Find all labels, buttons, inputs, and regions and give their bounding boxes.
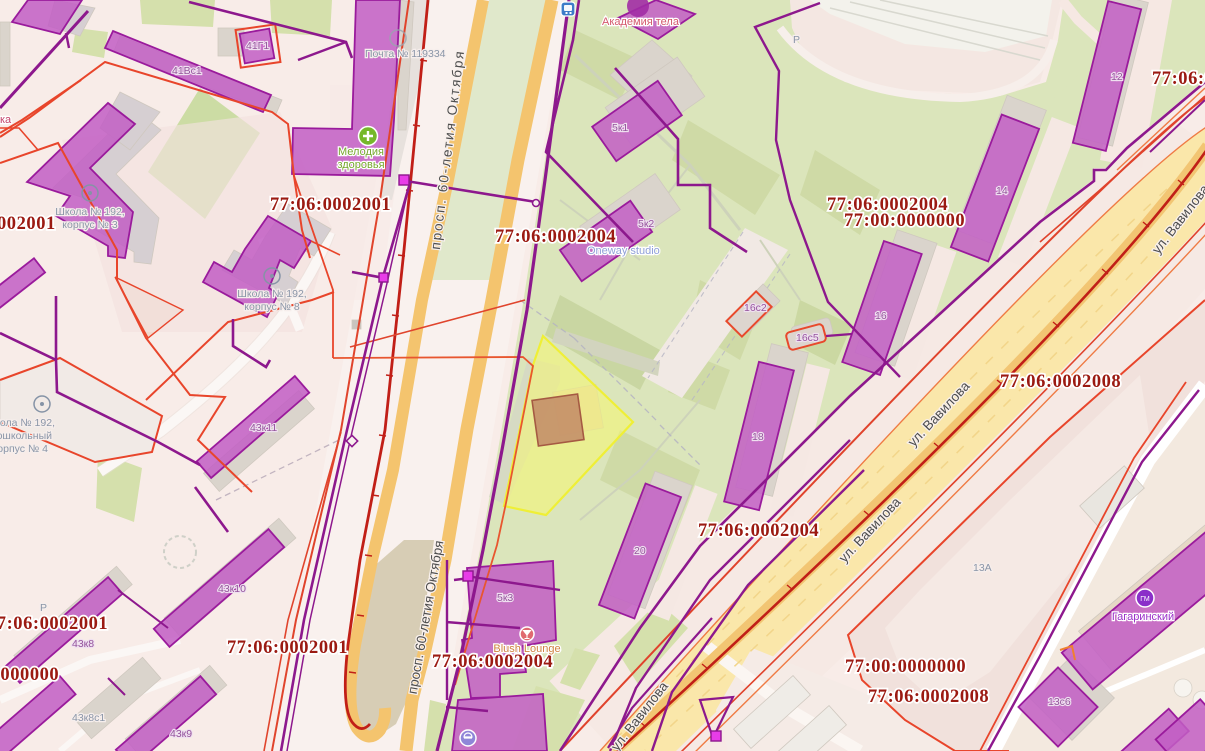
svg-text:Мелодия: Мелодия [338, 146, 384, 158]
svg-text:13с6: 13с6 [1048, 696, 1071, 708]
svg-text:77:06:0002001: 77:06:0002001 [270, 195, 391, 215]
svg-text:Академия тела: Академия тела [602, 16, 680, 28]
svg-text:Гагаринский: Гагаринский [1112, 611, 1174, 623]
svg-text:43к11: 43к11 [250, 422, 277, 434]
svg-text:корпус № 4: корпус № 4 [0, 443, 48, 455]
svg-text:16с2: 16с2 [744, 302, 767, 314]
svg-text:ГМ: ГМ [1140, 596, 1150, 603]
svg-text:18: 18 [752, 431, 764, 443]
svg-text:77:06:0002001: 77:06:0002001 [227, 638, 348, 658]
svg-text:77:00:0000000: 77:00:0000000 [844, 211, 965, 231]
svg-text:43к8с1: 43к8с1 [72, 712, 105, 724]
svg-text:16: 16 [875, 310, 887, 322]
svg-text:Blush Lounge: Blush Lounge [493, 643, 560, 655]
svg-text:43к10: 43к10 [218, 583, 246, 595]
svg-text:77:06:0002001: 77:06:0002001 [0, 614, 108, 634]
svg-text:корпус № 8: корпус № 8 [244, 301, 300, 313]
svg-text:Р: Р [40, 602, 47, 614]
svg-text:5к2: 5к2 [638, 218, 654, 230]
svg-text:43к9: 43к9 [170, 728, 192, 740]
svg-text:Школа № 192,: Школа № 192, [0, 417, 55, 429]
svg-text:Школа № 192,: Школа № 192, [55, 206, 124, 218]
svg-text:13А: 13А [973, 562, 992, 574]
svg-text:корпус № 3: корпус № 3 [62, 219, 118, 231]
svg-text:77:06:0002004: 77:06:0002004 [495, 227, 616, 247]
svg-text:43к8: 43к8 [72, 638, 94, 650]
svg-text:77:06:0002004: 77:06:0002004 [432, 652, 553, 672]
svg-text:дошкольный: дошкольный [0, 430, 52, 442]
svg-text:Р: Р [793, 34, 800, 46]
svg-text:Школа № 192,: Школа № 192, [237, 288, 306, 300]
svg-text:16с5: 16с5 [796, 332, 819, 344]
svg-text:ка: ка [0, 114, 12, 126]
svg-text:77:06:0002004: 77:06:0002004 [698, 521, 819, 541]
svg-text:14: 14 [996, 185, 1008, 197]
svg-text:Почта № 119334: Почта № 119334 [365, 48, 446, 60]
svg-text:20: 20 [634, 545, 646, 557]
svg-text:12: 12 [1111, 71, 1123, 83]
svg-text:Oneway studio: Oneway studio [587, 245, 660, 257]
svg-text:77:00:0000000: 77:00:0000000 [845, 657, 966, 677]
svg-text:5к3: 5к3 [497, 592, 513, 604]
svg-text:77:00:0000000: 77:00:0000000 [0, 665, 59, 685]
svg-text:5к1: 5к1 [612, 122, 628, 134]
svg-text:002001: 002001 [0, 214, 56, 234]
svg-text:77:06:00020: 77:06:00020 [1152, 69, 1205, 89]
svg-text:77:06:0002008: 77:06:0002008 [1000, 372, 1121, 392]
svg-text:здоровья: здоровья [337, 159, 384, 171]
svg-text:41Вс1: 41Вс1 [172, 65, 202, 77]
svg-text:41Г1: 41Г1 [246, 40, 269, 52]
svg-text:77:06:0002008: 77:06:0002008 [868, 687, 989, 707]
